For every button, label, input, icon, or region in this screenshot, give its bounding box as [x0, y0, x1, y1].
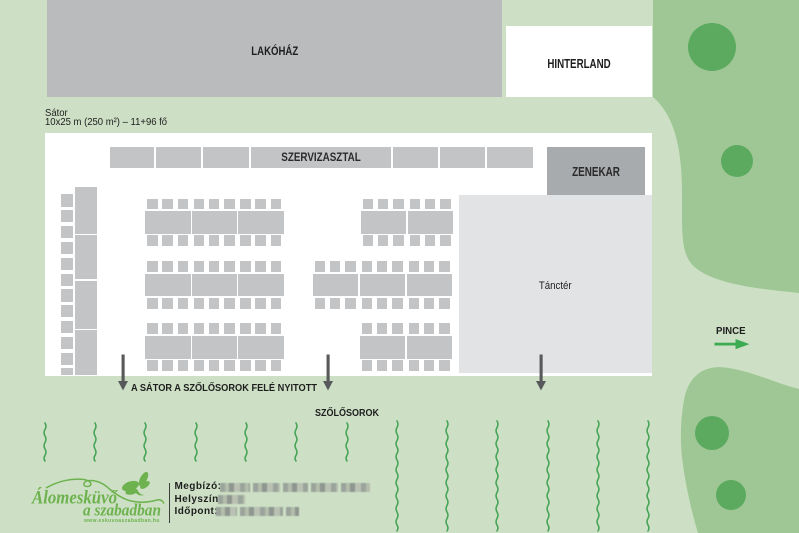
- svg-text:a szabadban: a szabadban: [83, 501, 161, 520]
